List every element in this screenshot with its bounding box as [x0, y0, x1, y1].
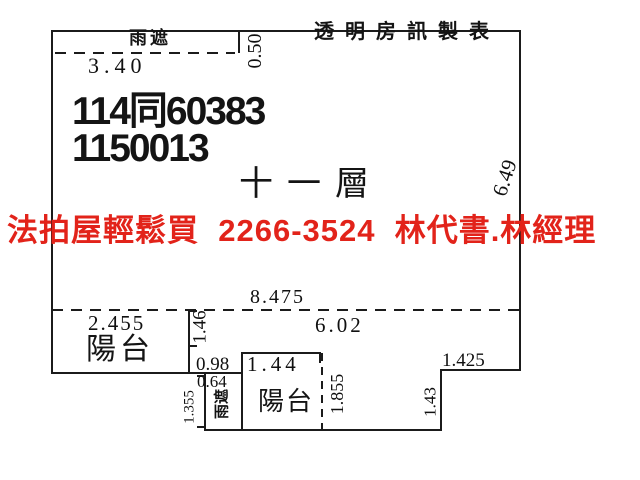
wall-bottom [204, 429, 442, 431]
case-id-line2: 1150013 [72, 129, 208, 168]
dim-notch-depth: 1.46 [191, 310, 210, 343]
dim-canopy-side-height: 1.355 [183, 390, 198, 424]
floorplan-canvas: 透明房訊製表 雨遮 3.40 0.50 114同60383 1150013 十一… [0, 0, 640, 480]
dim-step-height: 1.43 [422, 387, 439, 417]
notch-tick-bottom [190, 345, 197, 347]
floor-label: 十一層 [239, 167, 383, 201]
dim-canopy-side-width: 0.64 [197, 373, 227, 390]
strip-tick-bottom [197, 426, 204, 428]
canopy-top-label: 雨遮 [129, 29, 171, 47]
wall-right [519, 30, 521, 371]
canopy-side-label: 雨遮 [215, 389, 230, 419]
dim-balcony-left-width: 2.455 [88, 313, 145, 334]
balcony-left-label: 陽台 [86, 335, 154, 365]
maker-label: 透明房訊製表 [314, 22, 500, 42]
canopy-right-edge [238, 31, 240, 53]
dim-right-side-height: 6.49 [489, 157, 520, 198]
dim-step-width: 1.425 [442, 351, 485, 370]
wall-left [51, 30, 53, 374]
balcony-bottom-label: 陽台 [258, 388, 314, 414]
dim-interior-right-width: 6.02 [315, 315, 364, 336]
ad-banner-text: 法拍屋輕鬆買 2266-3524 林代書.林經理 [7, 215, 596, 246]
balcony-bottom-left-edge [241, 352, 243, 431]
step-vertical-wall [440, 369, 442, 431]
dim-balcony-bottom-width: 1.44 [247, 354, 300, 375]
dim-canopy-depth: 0.50 [245, 34, 265, 69]
case-id-line1: 114同60383 [72, 92, 264, 131]
dim-canopy-width: 3.40 [88, 55, 147, 77]
dim-interior-total-width: 8.475 [250, 287, 305, 307]
balcony-bottom-right-dashed-edge [321, 353, 323, 430]
dim-balcony-bottom-depth: 1.855 [328, 374, 346, 415]
